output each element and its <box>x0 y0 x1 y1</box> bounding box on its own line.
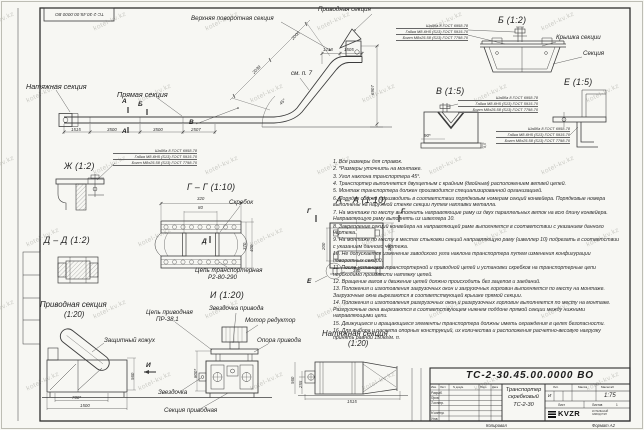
detail-mark-e: Е <box>307 279 311 286</box>
sprocket-label: Звездочка <box>158 390 187 396</box>
dim-400: 400 <box>250 245 254 252</box>
note-15: 15. Движущиеся и вращающиеся элементы тр… <box>333 321 622 328</box>
tb-sheet-label: Лист <box>558 403 565 407</box>
support-label: Опора привода <box>257 338 301 344</box>
fastener-spec-v: Шайба 8 ГОСТ 6958-78 Гайка М8-6Н5 (S13) … <box>458 96 538 114</box>
tb-row-nkontr: Н.контр. <box>431 411 445 415</box>
note-12: 12. Вращение валов и движение цепей долж… <box>333 279 622 286</box>
tb-kopiroval: Копировал <box>486 423 507 428</box>
note-9: 9. На монтаже по месту в местах стыковки… <box>333 237 622 250</box>
tb-mass-label: Масса <box>578 385 587 389</box>
dim-3500-2: 3500 <box>153 128 163 132</box>
tb-lit-label: Лит. <box>553 385 559 389</box>
spec-bolt: Болт М8х25.58 (S13) ГОСТ 7798-70 <box>496 139 570 144</box>
doc-number: ТС-2-30.45.00.0000 ВО <box>430 370 630 381</box>
conveyor-chain-model: Р2-80-290 <box>208 275 237 281</box>
view-title-dd: Д – Д (1:2) <box>44 236 90 245</box>
upper-turn-section-label: Верхняя поворотная секция <box>191 16 274 22</box>
tb-header-list: Лист <box>440 386 446 389</box>
guard-label: Защитный кожух <box>104 338 155 344</box>
dim-90: 90* <box>424 134 431 138</box>
dim-6907: 6907 <box>371 85 375 95</box>
section-mark-g-left: Г <box>307 209 311 216</box>
tb-row-prov: Пров. <box>431 396 439 400</box>
cover-label: Крышка секции <box>556 35 601 41</box>
tb-title-line3: ТС-2-30 <box>502 402 545 408</box>
note-16: 16. Для выбора и расчета опорных констру… <box>333 328 622 341</box>
tb-row-razrab: Разраб. <box>431 391 443 395</box>
tb-row-utv: Утв. <box>431 417 438 421</box>
dim-560-side: 560 <box>131 373 135 380</box>
tb-format: Формат А2 <box>592 423 615 428</box>
dim-1218: 1218 <box>323 48 333 52</box>
tb-title-line1: Транспортер <box>502 387 545 393</box>
note-7: 7. На монтаже по месту выполнить направл… <box>333 210 622 223</box>
dim-700: 700* <box>72 396 81 400</box>
tb-header-data: Дата <box>492 386 498 389</box>
dim-560-tension: 560 <box>291 377 295 384</box>
tb-sheets-label: Листов <box>592 403 602 407</box>
drive-section-title: Приводная секция <box>40 301 107 309</box>
tb-header-doc: N докум. <box>453 386 464 389</box>
view-mark-i: И <box>146 363 151 370</box>
dim-3500-1: 3500 <box>107 128 117 132</box>
fastener-spec-b: Шайба 8 ГОСТ 6958-78 Гайка М8-6Н5 (S13) … <box>396 24 468 42</box>
section-mark-d: Д <box>202 239 207 246</box>
tb-lit-value: И <box>548 393 551 398</box>
note-5: 5. Монтаж транспортера должен производит… <box>333 188 622 195</box>
tb-sheets-value: 1 <box>616 403 618 407</box>
dim-320: 320 <box>197 197 204 201</box>
drive-sprocket-label: Звездочка привода <box>209 306 264 312</box>
section-mark-a-top: А <box>122 99 127 106</box>
section-mark-a-bottom: А <box>122 129 127 136</box>
dim-200: 200 <box>322 243 326 250</box>
note-13: 13. Положения и изготовления загрузочных… <box>333 286 622 299</box>
tb-title-line2: скребковый <box>502 394 545 400</box>
rotated-doc-number: ТС-2-30.45.00.0000 ВО <box>55 12 104 17</box>
view-title-zh: Ж (1:2) <box>64 162 95 171</box>
view-title-gg: Г – Г (1:10) <box>187 183 235 192</box>
note-1: 1. Все размеры для справок. <box>333 159 622 166</box>
dim-1515: 1515 <box>71 128 81 132</box>
drive-section-name-label: Секция приводная <box>164 408 217 414</box>
spec-bolt: Болт М8х25.58 (S13) ГОСТ 7798-70 <box>458 108 538 113</box>
drive-chain-model: ПР-38,1 <box>156 317 179 323</box>
dim-1505: 1505 <box>344 48 354 52</box>
view-title-b: Б (1:2) <box>498 16 526 25</box>
drive-section-callout: Приводная секция <box>318 7 371 13</box>
dim-4-5: 4,5 <box>484 143 487 148</box>
fastener-spec-zh: Шайба 8 ГОСТ 6958-78 Гайка М8-6Н5 (S13) … <box>113 149 197 167</box>
note-4: 4. Транспортер выполняется двухцепным с … <box>333 181 622 188</box>
tb-header-izm: Изм. <box>431 386 437 389</box>
note-14: 14. Положения и изготовления разгрузочны… <box>333 300 622 320</box>
spec-bolt: Болт М8х25.58 (S13) ГОСТ 7798-70 <box>396 36 468 41</box>
scraper-label: Скребок <box>229 200 253 206</box>
see-note-7-label: см. п. 7 <box>291 71 312 77</box>
kvzr-logo-sub2: ЗАВОД РЭП <box>592 414 607 417</box>
view-title-e: Е (1:5) <box>564 78 593 87</box>
spec-bolt: Болт М8х25.58 (S13) ГОСТ 7798-70 <box>113 161 197 166</box>
tb-header-podp: Подп. <box>480 386 487 389</box>
dim-2507: 2507 <box>191 128 201 132</box>
kvzr-logo-text: KVZR <box>558 409 580 418</box>
dim-1515-tension: 1515 <box>347 400 357 404</box>
note-2: 2. *Размеры уточнить на монтаже. <box>333 166 622 173</box>
tension-section-callout: Натяжная секция <box>26 83 87 90</box>
dim-80: 80 <box>198 206 203 210</box>
drawing-sheet: kotel-kv.kzkotel-kv.kzkotel-kv.kzkotel-k… <box>0 0 644 430</box>
detail-mark-v: В <box>189 120 194 127</box>
section-label: Секция <box>583 51 604 57</box>
dim-800: 800* <box>194 369 198 378</box>
rotated-doc-number-stamp: ТС-2-30.45.00.0000 ВО <box>44 8 114 21</box>
note-8: 8. Закрепление секций конвейера на напра… <box>333 224 622 237</box>
section-mark-b: Б <box>138 102 143 109</box>
view-title-i: И (1:20) <box>210 291 244 300</box>
note-3: 3. Угол наклона транспортера 45°. <box>333 174 622 181</box>
dim-255: 255 <box>299 381 303 388</box>
note-11: 11. После установки транспортерной и при… <box>333 265 622 278</box>
motor-label: Мотор редуктор <box>245 318 296 324</box>
dim-1500: 1500 <box>80 404 90 408</box>
drive-section-scale: (1:20) <box>64 311 84 319</box>
technical-notes: 1. Все размеры для справок. 2. *Размеры … <box>333 159 622 342</box>
tb-scale-label: Масштаб <box>601 385 614 389</box>
tb-row-tkontr: Т.контр. <box>431 401 444 405</box>
note-10: 10. Не допускается изменение заводского … <box>333 251 622 264</box>
dim-370: 370 <box>243 243 247 250</box>
note-6: 6. Порядок сборки производить в соответс… <box>333 196 622 209</box>
tb-scale-value: 1:75 <box>604 393 616 399</box>
view-title-v: В (1:5) <box>436 87 465 96</box>
fastener-spec-e: Шайба 8 ГОСТ 6958-78 Гайка М8-6Н5 (S13) … <box>496 127 570 145</box>
kvzr-logo-icon <box>548 411 556 419</box>
